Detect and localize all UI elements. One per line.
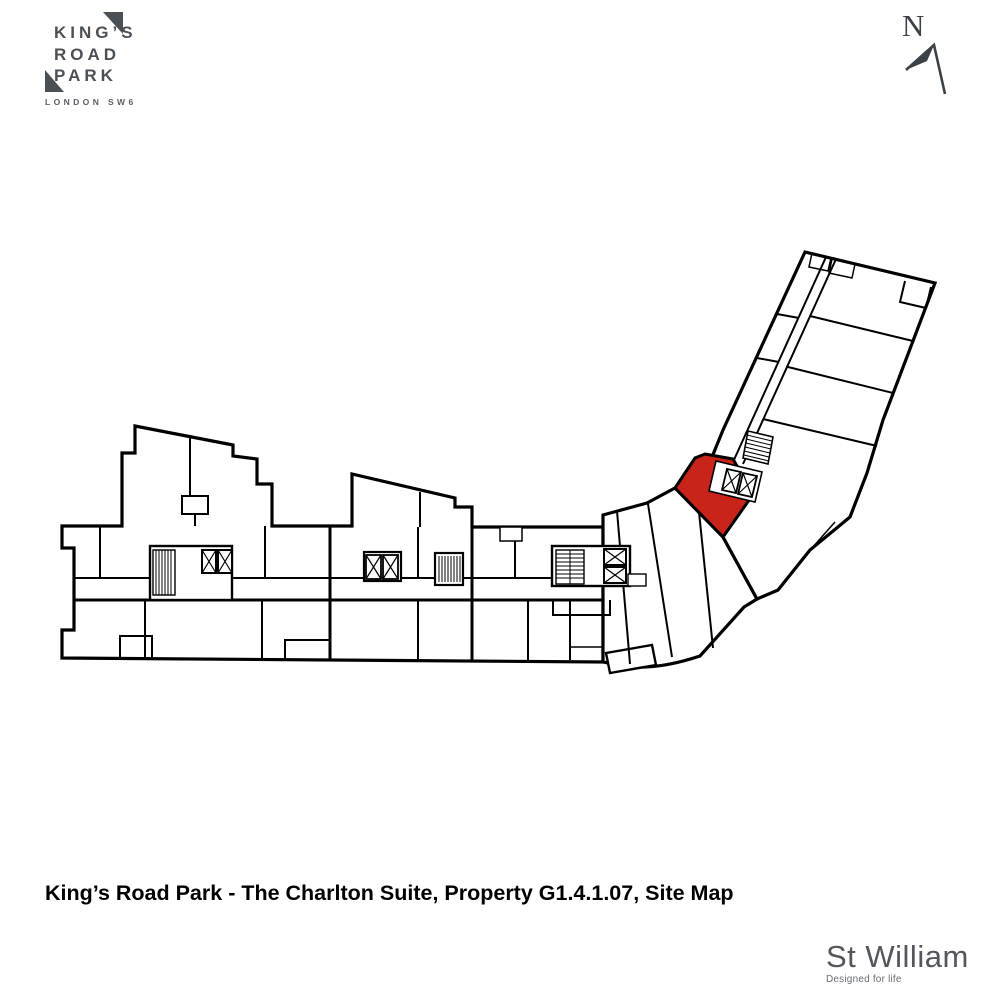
west-block-outline — [62, 426, 603, 662]
site-map — [0, 0, 1000, 1000]
caption: King’s Road Park - The Charlton Suite, P… — [45, 881, 734, 906]
roof-detail — [500, 527, 522, 541]
developer-logo-tagline: Designed for life — [826, 974, 969, 985]
page-root: KING’S ROAD PARK LONDON SW6 N — [0, 0, 1000, 1000]
tower-wing-outline — [712, 252, 935, 599]
tower1-roof-detail — [182, 496, 208, 514]
core-west — [150, 546, 232, 600]
core-lobby — [628, 574, 646, 586]
developer-logo-name: St William — [826, 941, 969, 973]
developer-logo: St William Designed for life — [826, 941, 969, 985]
